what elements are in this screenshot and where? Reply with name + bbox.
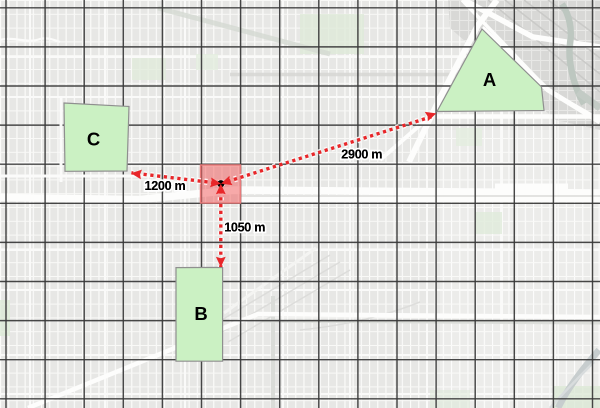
svg-text:1200 m: 1200 m [145, 179, 186, 193]
svg-text:B: B [194, 303, 207, 324]
svg-text:C: C [87, 129, 100, 150]
svg-text:2900 m: 2900 m [341, 148, 382, 162]
svg-text:1050 m: 1050 m [224, 221, 265, 235]
svg-text:A: A [483, 69, 496, 90]
